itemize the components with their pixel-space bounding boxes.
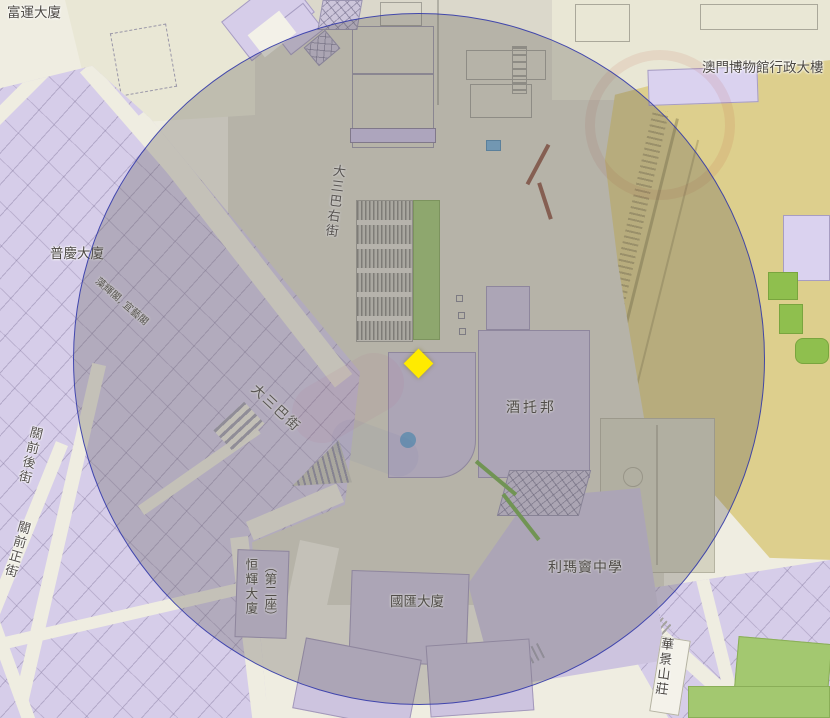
building-block — [486, 286, 530, 330]
plaza-building — [388, 352, 476, 478]
label-pou-heng-building: 普慶大廈 — [50, 247, 104, 263]
building-outline — [700, 4, 818, 30]
glass-roof — [317, 0, 362, 30]
secondary-point-marker[interactable] — [400, 432, 416, 448]
label-hang-fai-building: 恒輝大廈 — [243, 558, 257, 616]
green-area — [795, 338, 829, 364]
green-area — [779, 304, 803, 334]
map-canvas[interactable]: 富運大廈 普慶大廈 藻輝閣, 宜藝閣 大三巴右街 大三巴街 關前後街 關前正街 … — [0, 0, 830, 718]
road-tick — [459, 328, 466, 335]
st-pauls-stairs — [356, 200, 413, 342]
road-divider-line — [437, 0, 439, 105]
dashed-building-outline — [110, 24, 177, 97]
label-museum-admin-building: 澳門博物館行政大樓 — [702, 61, 824, 77]
green-area — [768, 272, 798, 300]
st-pauls-facade — [350, 128, 436, 143]
road-tick — [456, 295, 463, 302]
label-hang-fai-block: （第二座） — [262, 560, 276, 623]
label-fu-wan-building: 富運大廈 — [7, 6, 61, 22]
building-outline — [575, 4, 630, 42]
label-jiutuoban: 酒托邦 — [506, 400, 557, 416]
court-circle — [623, 467, 643, 487]
stair-symbol — [512, 46, 527, 94]
museum-building-outline — [466, 50, 546, 80]
map-symbol-blue — [486, 140, 501, 151]
green-area — [688, 686, 830, 718]
lawn-strip — [413, 200, 440, 340]
court-line — [656, 425, 658, 565]
building-block — [426, 638, 535, 717]
building-outline — [380, 2, 422, 26]
label-kuok-wui-building: 國匯大廈 — [390, 595, 444, 611]
road-tick — [458, 312, 465, 319]
church-inner-line — [353, 73, 433, 75]
label-ricci-college: 利瑪竇中學 — [548, 560, 623, 576]
road — [0, 60, 55, 137]
